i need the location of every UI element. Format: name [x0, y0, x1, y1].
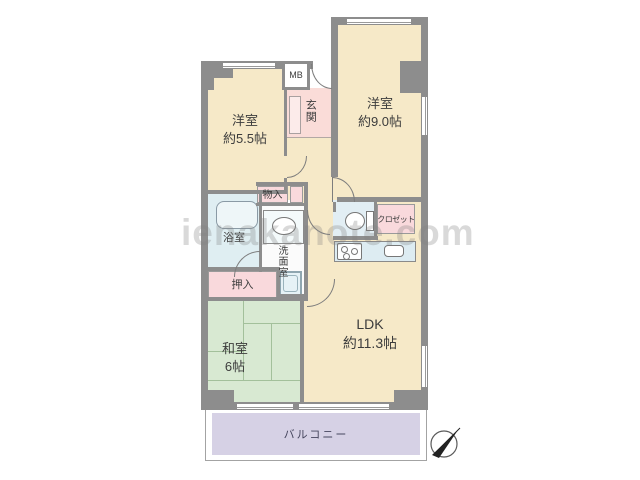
ldk-label: LDK 約11.3帖 [328, 315, 412, 353]
monoire-label: 物入 [257, 190, 288, 202]
wall-japanese-top [205, 297, 304, 301]
storage-box-small [290, 186, 303, 203]
room55-name: 洋室 [232, 113, 258, 128]
compass-icon [426, 424, 464, 462]
japanese-room-label: 和室 6帖 [203, 340, 267, 375]
entrance-step-line [287, 137, 333, 138]
window-ldk-balcony [298, 403, 390, 410]
watermark-text: ienakanote.com [181, 212, 475, 254]
meter-box-label: MB [284, 70, 308, 81]
room9-name: 洋室 [367, 96, 393, 111]
wall-monoire-bottom [256, 203, 304, 206]
balcony-label: バルコニー [266, 429, 366, 442]
japanese-room-size: 6帖 [225, 359, 245, 374]
ldk-name: LDK [356, 316, 383, 332]
wall-japanese-right [300, 301, 304, 404]
window-japanese-balcony [236, 403, 294, 410]
room55-size: 約5.5帖 [223, 131, 267, 146]
japanese-room-name: 和室 [222, 341, 248, 356]
ldk-size: 約11.3帖 [343, 335, 397, 351]
wall-toilet-left-stub [333, 202, 336, 212]
window-room9-top [346, 18, 412, 25]
wall-right-notch [400, 61, 428, 93]
room55-label: 洋室 約5.5帖 [205, 112, 285, 147]
oshiire-label: 押入 [208, 279, 277, 292]
window-ldk-right [421, 345, 428, 388]
floor-plan: バルコニー [0, 0, 640, 480]
entrance-label: 玄関 [303, 90, 316, 132]
window-room9-right [421, 96, 428, 136]
wall-corner-bottom-right [394, 390, 428, 410]
window-room55-top [222, 62, 276, 69]
wall-room9-left [331, 17, 338, 177]
wall-monoire-top [256, 182, 308, 186]
wall-corner-bottom-left [201, 390, 234, 410]
tatami-line [206, 380, 300, 381]
shoe-cabinet [289, 96, 301, 134]
entrance-door-arc [311, 64, 332, 89]
tatami-line [271, 324, 272, 380]
room9-size: 約9.0帖 [358, 114, 402, 129]
room9-label: 洋室 約9.0帖 [338, 95, 422, 130]
